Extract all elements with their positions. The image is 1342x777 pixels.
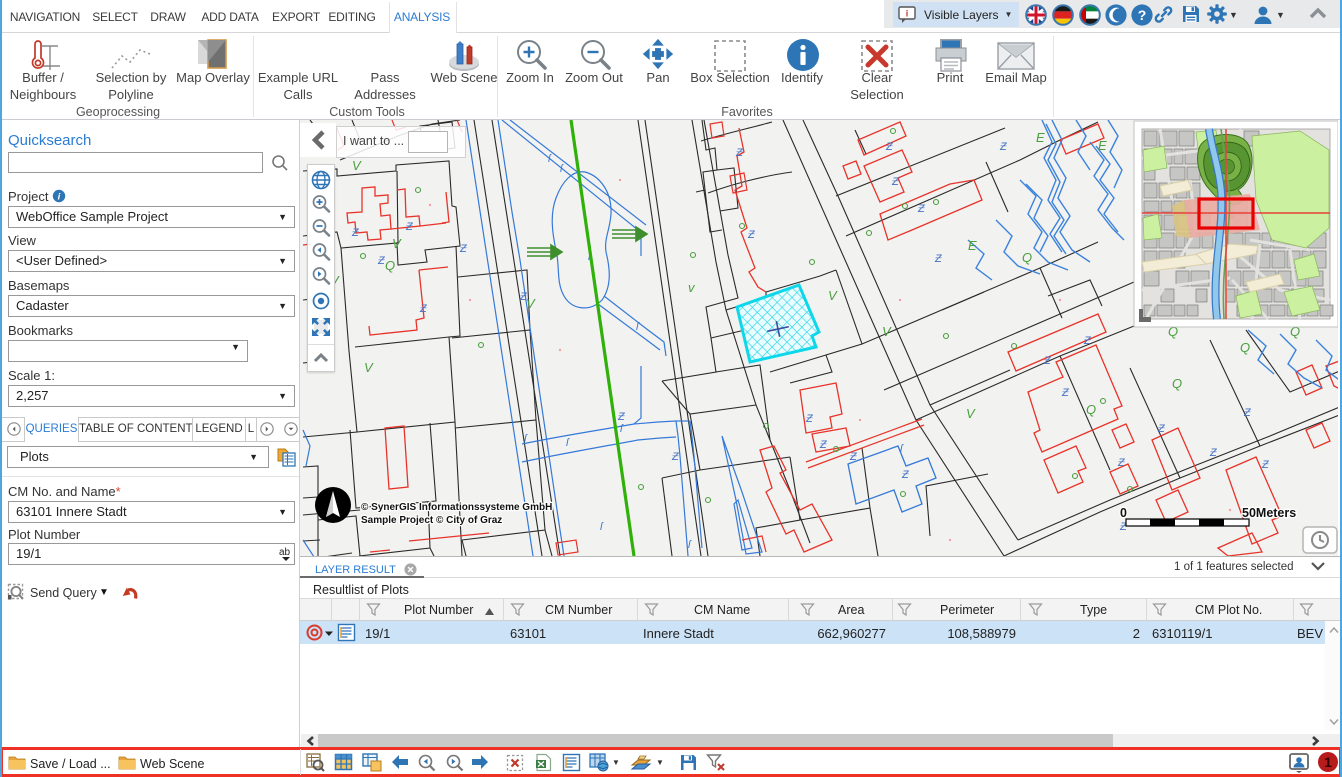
svg-text:Ƶ: Ƶ (1209, 447, 1218, 459)
svg-text:0: 0 (1120, 506, 1127, 520)
svg-text:V: V (364, 360, 374, 375)
svg-text:Ƶ: Ƶ (1157, 423, 1166, 435)
svg-text:Ƶ: Ƶ (917, 203, 926, 215)
svg-text:Ƶ: Ƶ (1061, 387, 1070, 399)
svg-text:Q: Q (385, 258, 395, 273)
svg-text:Ƶ: Ƶ (885, 141, 894, 153)
svg-text:E: E (968, 238, 977, 253)
svg-text:V: V (882, 324, 892, 339)
svg-text:Ƶ: Ƶ (1243, 407, 1252, 419)
svg-text:Ƶ: Ƶ (901, 469, 910, 481)
svg-text:50Meters: 50Meters (1242, 506, 1296, 520)
svg-text:E: E (1036, 130, 1045, 145)
svg-text:Ƶ: Ƶ (819, 439, 828, 451)
svg-text:Ƶ: Ƶ (1043, 355, 1052, 367)
svg-text:Ƶ: Ƶ (891, 176, 900, 188)
svg-text:i: i (906, 8, 909, 18)
svg-text:Ƶ: Ƶ (617, 411, 626, 423)
svg-text:© SynerGIS Informationssysteme: © SynerGIS Informationssysteme GmbH (361, 502, 552, 513)
svg-text:V: V (392, 236, 402, 251)
svg-text:Ƶ: Ƶ (419, 303, 428, 315)
svg-text:V: V (828, 288, 838, 303)
svg-text:V: V (526, 296, 536, 311)
svg-text:Ƶ: Ƶ (377, 255, 386, 267)
svg-text:Ƶ: Ƶ (999, 141, 1008, 153)
svg-text:Q: Q (1172, 376, 1182, 391)
svg-text:ab: ab (279, 547, 291, 558)
svg-text:Ƶ: Ƶ (459, 243, 468, 255)
svg-text:E: E (1098, 138, 1107, 153)
svg-text:Ƶ: Ƶ (735, 147, 744, 159)
svg-text:V: V (352, 158, 362, 173)
svg-text:Ƶ: Ƶ (934, 253, 943, 265)
svg-text:Ƶ: Ƶ (849, 451, 858, 463)
svg-text:Q: Q (1086, 402, 1096, 417)
svg-text:Ƶ: Ƶ (519, 291, 528, 303)
svg-text:Ƶ: Ƶ (1083, 335, 1092, 347)
svg-text:Ƶ: Ƶ (671, 451, 680, 463)
svg-text:Ƶ: Ƶ (1261, 459, 1270, 471)
svg-text:Ƶ: Ƶ (805, 413, 814, 425)
svg-text:Ƶ: Ƶ (405, 221, 414, 233)
svg-text:Ƶ: Ƶ (1117, 457, 1126, 469)
svg-text:Ƶ: Ƶ (351, 227, 360, 239)
svg-text:Q: Q (1022, 250, 1032, 265)
svg-text:Q: Q (1240, 340, 1250, 355)
svg-text:i: i (58, 192, 61, 203)
svg-text:V: V (966, 406, 976, 421)
svg-text:?: ? (1138, 7, 1147, 23)
svg-text:Sample Project © City of Graz: Sample Project © City of Graz (361, 515, 502, 526)
svg-text:Ƶ: Ƶ (747, 229, 756, 241)
